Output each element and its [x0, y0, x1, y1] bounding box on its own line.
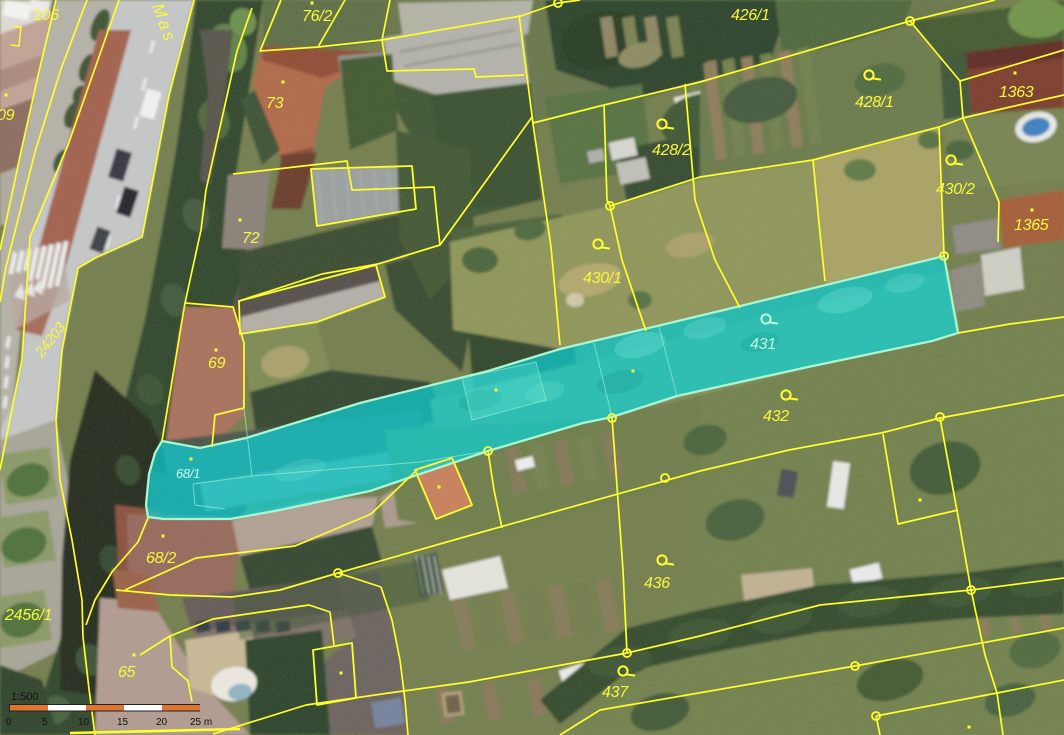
svg-text:436: 436 — [644, 575, 670, 592]
svg-text:430/2: 430/2 — [936, 181, 975, 198]
svg-text:73: 73 — [266, 95, 284, 112]
svg-text:69: 69 — [208, 355, 226, 372]
svg-text:10: 10 — [78, 717, 90, 728]
svg-text:25 m: 25 m — [190, 717, 212, 728]
svg-text:0: 0 — [6, 717, 12, 728]
svg-text:68/2: 68/2 — [146, 550, 176, 567]
svg-text:1:500: 1:500 — [11, 691, 39, 703]
svg-text:65: 65 — [118, 664, 136, 681]
svg-text:1365: 1365 — [1014, 217, 1049, 234]
svg-text:437: 437 — [602, 684, 629, 701]
svg-text:5: 5 — [42, 717, 48, 728]
svg-text:2456/1: 2456/1 — [4, 607, 52, 624]
svg-text:430/1: 430/1 — [583, 270, 622, 287]
svg-text:68/1: 68/1 — [176, 466, 200, 481]
svg-text:431: 431 — [750, 336, 776, 353]
svg-text:20: 20 — [156, 717, 168, 728]
svg-text:432: 432 — [763, 408, 789, 425]
svg-text:15: 15 — [117, 717, 129, 728]
svg-text:428/2: 428/2 — [652, 142, 691, 159]
svg-text:428/1: 428/1 — [855, 94, 894, 111]
svg-text:72: 72 — [242, 230, 260, 247]
svg-text:1363: 1363 — [999, 84, 1034, 101]
svg-text:76/2: 76/2 — [302, 8, 332, 25]
svg-text:09: 09 — [0, 107, 15, 124]
svg-text:426/1: 426/1 — [731, 7, 770, 24]
svg-text:106: 106 — [33, 7, 59, 24]
